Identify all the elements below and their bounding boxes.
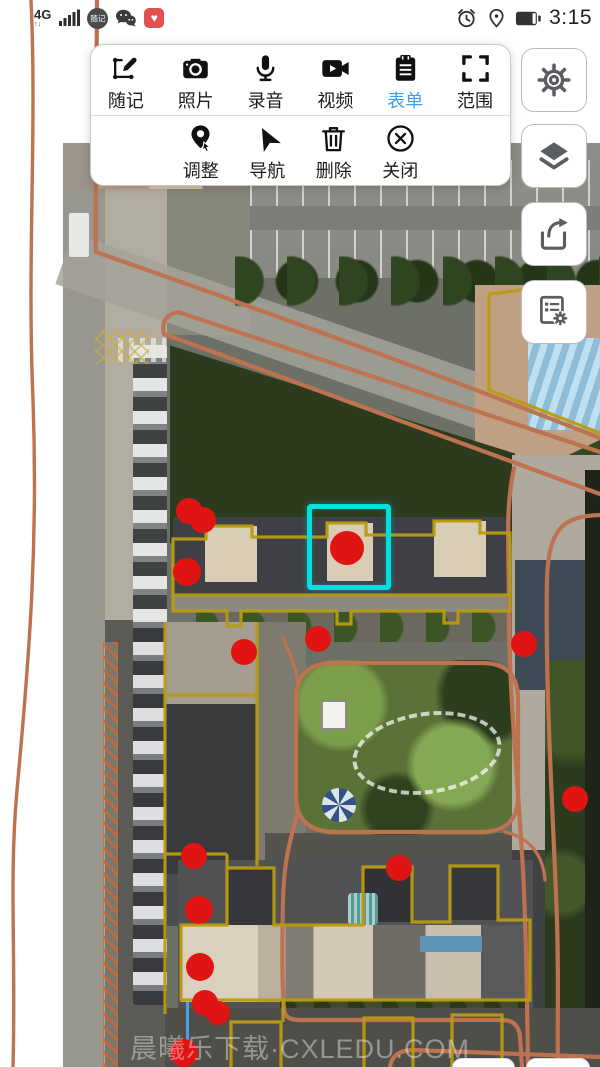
location-icon [485,6,508,30]
battery-icon [515,7,542,30]
building-outline[interactable] [165,622,257,1014]
signal-bars-icon [59,8,81,28]
app-screen: 晨曦乐下载·CXLEDU.COM 4G ↑↓ 随记 [0,0,600,1067]
courtyard-loop[interactable] [296,663,518,832]
tool-audio[interactable]: 录音 [231,53,301,115]
tool-delete[interactable]: 删除 [301,123,368,186]
form-settings-icon [534,292,574,332]
map-share-button[interactable] [521,202,587,266]
toolbar-row-2: 调整 导航 删除 关闭 [91,116,510,186]
tool-adjust[interactable]: 调整 [168,123,235,186]
note-draw-icon [110,53,141,84]
tool-navigate[interactable]: 导航 [234,123,301,186]
tool-label: 导航 [249,157,285,183]
tool-label: 随记 [108,87,144,113]
layers-icon [534,136,574,176]
map-form-settings-button[interactable] [521,280,587,344]
tool-label: 调整 [183,157,219,183]
route-line[interactable] [13,0,35,1067]
share-icon [534,214,574,254]
building-outline[interactable] [181,866,530,1000]
tool-photo[interactable]: 照片 [161,53,231,115]
map-settings-button[interactable] [521,48,587,112]
tool-video[interactable]: 视频 [300,53,370,115]
range-icon [460,53,491,84]
status-bar: 4G ↑↓ 随记 ♥ [0,0,600,36]
toolbar-row-1: 随记 照片 录音 [91,45,510,116]
selection-box[interactable] [307,504,391,590]
camera-icon [180,53,211,84]
route-line[interactable] [547,515,600,1067]
adjust-pin-icon [185,123,216,154]
tool-label: 照片 [178,87,214,113]
alarm-clock-icon [455,6,478,30]
annotation-toolbar: 随记 照片 录音 [90,44,511,186]
microphone-icon [250,53,281,84]
route-line[interactable] [283,638,298,682]
tool-range[interactable]: 范围 [440,53,510,115]
settings-gear-icon [534,60,574,100]
wechat-icon [114,7,138,29]
bottom-button-partial[interactable] [526,1058,590,1067]
trash-icon [318,123,349,154]
tool-label-active: 表单 [387,87,423,113]
network-type: 4G [34,8,51,21]
tool-label: 删除 [316,157,352,183]
status-right: 3:15 [455,6,592,30]
tool-label: 视频 [317,87,353,113]
tool-close[interactable]: 关闭 [367,123,434,186]
navigate-icon [252,123,283,154]
video-icon [320,53,351,84]
tool-label: 关闭 [382,157,418,183]
app-badge-icon: 随记 [87,8,108,29]
form-icon [390,53,421,84]
bottom-button-partial[interactable] [452,1058,515,1067]
red-app-icon: ♥ [144,8,164,28]
status-left: 4G ↑↓ 随记 ♥ [34,7,164,29]
tool-form[interactable]: 表单 [370,53,440,115]
tool-note[interactable]: 随记 [91,53,161,115]
close-circle-icon [385,123,416,154]
tool-label: 范围 [457,87,493,113]
network-indicator: 4G ↑↓ [34,8,51,28]
map-layers-button[interactable] [521,124,587,188]
clock-time: 3:15 [549,6,592,30]
tool-label: 录音 [248,87,284,113]
network-arrows: ↑↓ [34,21,51,28]
building-outline[interactable] [173,595,510,626]
